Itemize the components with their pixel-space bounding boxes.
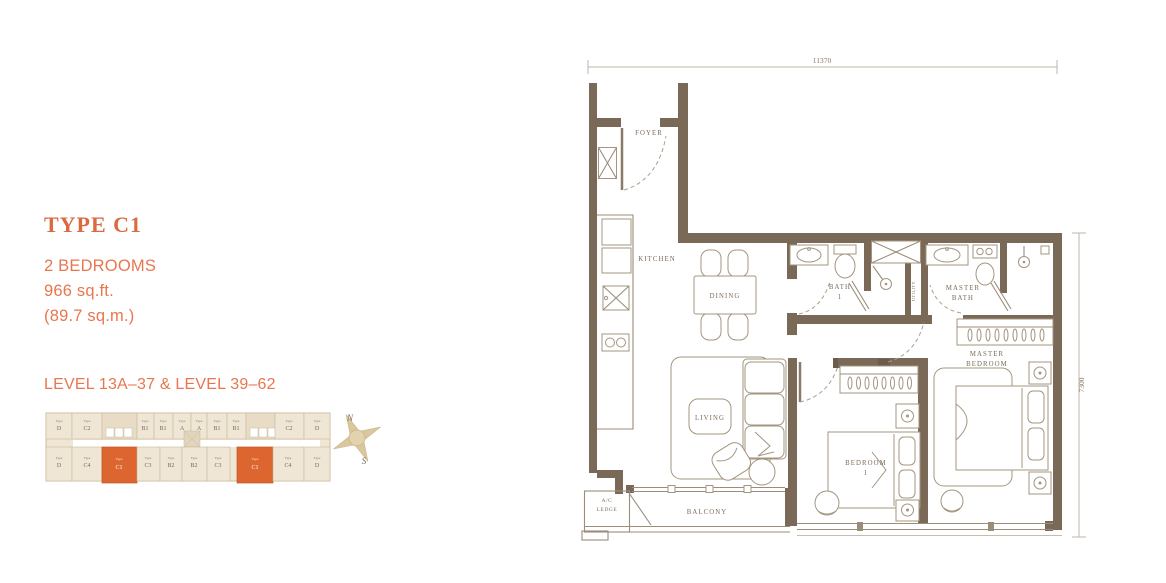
- ac-ledge-label-line2: LEDGE: [597, 507, 618, 513]
- dining-chair: [728, 250, 748, 277]
- master-bath-label-line1: MASTER: [946, 285, 980, 292]
- bedroom1-chair: [815, 491, 839, 515]
- master-bedroom-label-line1: MASTER: [970, 351, 1004, 358]
- entrance-door-swing: [624, 136, 666, 190]
- bedroom1-bed: [828, 432, 920, 508]
- svg-text:Type: Type: [142, 419, 149, 423]
- dimension-width-value: 11370: [813, 56, 832, 65]
- compass-north-label: N: [346, 413, 354, 423]
- room-living: LIVING: [671, 357, 786, 485]
- svg-text:C4: C4: [83, 463, 90, 469]
- dining-chair: [728, 313, 748, 340]
- master-bedroom-label-line2: BEDROOM: [966, 361, 1008, 368]
- room-dining: DINING: [694, 250, 756, 340]
- svg-text:C3: C3: [144, 463, 151, 469]
- keyplan-unit: Type C2: [72, 413, 102, 439]
- kitchen-cabinet: [602, 248, 631, 273]
- master-wardrobe: [957, 319, 1053, 345]
- svg-text:C1: C1: [115, 465, 122, 471]
- keyplan-unit: Type B1: [137, 413, 154, 439]
- keyplan-unit: Type C4: [273, 447, 304, 481]
- svg-text:B1: B1: [159, 426, 166, 432]
- keyplan-core: [102, 413, 137, 439]
- master-bath-label-line2: BATH: [952, 295, 974, 302]
- svg-text:C2: C2: [285, 426, 292, 432]
- keyplan-unit: Type C2: [275, 413, 304, 439]
- ac-ledge: A/C LEDGE: [582, 491, 630, 540]
- dining-chair: [701, 313, 721, 340]
- svg-text:Type: Type: [160, 419, 167, 423]
- svg-text:D: D: [57, 463, 62, 469]
- kitchen-fridge: [602, 219, 631, 245]
- utility-label: UTILITY: [911, 281, 916, 301]
- bedroom1-label-line2: 1: [864, 470, 869, 477]
- master-bath-sink: [926, 245, 968, 265]
- room-foyer: FOYER: [599, 128, 667, 190]
- floorplan: 11370 7300: [582, 56, 1086, 540]
- keyplan-unit: Type D: [304, 413, 330, 439]
- svg-text:Type: Type: [215, 456, 222, 460]
- keyplan-unit: Type C3: [207, 447, 230, 481]
- svg-text:Type: Type: [191, 456, 198, 460]
- svg-text:Type: Type: [84, 419, 91, 423]
- keyplan-unit: Type B1: [207, 413, 227, 439]
- master-chair: [941, 490, 963, 512]
- bedroom1-label-line1: BEDROOM: [845, 460, 887, 467]
- svg-text:D: D: [315, 463, 320, 469]
- room-bedroom1: BEDROOM 1: [800, 362, 920, 521]
- svg-text:Type: Type: [56, 419, 63, 423]
- bath1-sink: [790, 245, 828, 265]
- kitchen-label: KITCHEN: [638, 256, 676, 263]
- keyplan-unit: Type D: [304, 447, 330, 481]
- keyplan-unit: Type B2: [182, 447, 207, 481]
- bedroom1-wardrobe: [840, 366, 918, 393]
- keyplan-unit: Type C3: [137, 447, 160, 481]
- svg-text:B1: B1: [213, 426, 220, 432]
- svg-text:Type: Type: [84, 456, 91, 460]
- bedroom1-nightstand-bottom: [896, 500, 919, 521]
- bath1-toilet: [834, 245, 856, 278]
- keyplan-unit: Type B1: [154, 413, 173, 439]
- ac-duct: [872, 241, 921, 263]
- svg-text:Type: Type: [116, 457, 123, 461]
- master-bath-toilet: [973, 245, 997, 285]
- svg-text:C3: C3: [214, 463, 221, 469]
- svg-text:Type: Type: [214, 419, 221, 423]
- svg-text:Type: Type: [56, 456, 63, 460]
- keyplan-unit: Type B1: [227, 413, 246, 439]
- master-nightstand-bottom: [1029, 472, 1051, 494]
- kitchen-sink: [603, 286, 629, 310]
- svg-text:Type: Type: [196, 419, 203, 423]
- svg-text:Type: Type: [286, 419, 293, 423]
- svg-text:C1: C1: [251, 465, 258, 471]
- dining-chair: [701, 250, 721, 277]
- master-bed: [956, 386, 1048, 470]
- svg-text:Type: Type: [168, 456, 175, 460]
- master-bedroom-door-swing: [888, 322, 924, 362]
- keyplan-unit-highlighted: Type C1: [102, 447, 137, 483]
- master-bath-shower: [991, 246, 1049, 311]
- svg-text:B1: B1: [232, 426, 239, 432]
- kitchen-counter: [597, 215, 633, 429]
- foyer-label: FOYER: [635, 130, 663, 137]
- svg-text:B2: B2: [190, 463, 197, 469]
- keyplan-bottom-row: Type D Type C4 Type C1 Type C3: [46, 447, 330, 483]
- bath1-label-line1: BATH: [829, 284, 851, 291]
- keyplan-unit: Type D: [46, 447, 72, 481]
- keyplan-stair-core: [184, 431, 200, 447]
- bath1-door-swing: [799, 281, 830, 314]
- bedroom-windows: [797, 522, 1062, 536]
- kitchen-hob: [602, 334, 629, 351]
- dining-label: DINING: [710, 293, 741, 300]
- keyplan: Type D Type C2 Type B1: [46, 413, 330, 483]
- keyplan-unit: Type B2: [160, 447, 182, 481]
- svg-text:Type: Type: [252, 457, 259, 461]
- svg-text:Type: Type: [285, 456, 292, 460]
- svg-text:D: D: [57, 426, 62, 432]
- dimension-height-value: 7300: [1077, 377, 1086, 392]
- living-sofa: [743, 359, 786, 459]
- ac-ledge-label-line1: A/C: [602, 498, 613, 504]
- svg-text:B1: B1: [141, 426, 148, 432]
- keyplan-unit: Type C4: [72, 447, 102, 481]
- svg-text:Type: Type: [314, 456, 321, 460]
- svg-text:Type: Type: [145, 456, 152, 460]
- svg-text:Type: Type: [314, 419, 321, 423]
- svg-text:Type: Type: [179, 419, 186, 423]
- svg-text:B2: B2: [167, 463, 174, 469]
- living-side-table: [749, 459, 775, 485]
- drawing-layer: Type D Type C2 Type B1: [0, 0, 1166, 583]
- svg-text:C4: C4: [284, 463, 291, 469]
- compass: N S: [322, 403, 391, 472]
- bedroom1-nightstand-top: [896, 404, 919, 428]
- svg-text:C2: C2: [83, 426, 90, 432]
- compass-south-label: S: [362, 456, 367, 466]
- bedroom1-door-swing: [800, 366, 838, 402]
- svg-text:D: D: [315, 426, 320, 432]
- balcony-ledge-door: [629, 493, 651, 525]
- bath1-label-line2: 1: [838, 294, 843, 301]
- svg-text:Type: Type: [233, 419, 240, 423]
- keyplan-unit: Type D: [46, 413, 72, 439]
- room-master-bath: MASTER BATH: [926, 245, 1049, 313]
- dimension-right: 7300: [1072, 233, 1086, 537]
- master-nightstand-top: [1029, 362, 1051, 384]
- compass-center: [349, 430, 365, 446]
- living-label: LIVING: [695, 415, 725, 422]
- room-kitchen: KITCHEN: [597, 215, 676, 429]
- keyplan-unit-highlighted: Type C1: [237, 447, 273, 483]
- floorplan-page: TYPE C1 2 BEDROOMS 966 sq.ft. (89.7 sq.m…: [0, 0, 1166, 583]
- balcony-label: BALCONY: [687, 509, 728, 516]
- dimension-top: 11370: [588, 56, 1057, 74]
- keyplan-core: [246, 413, 276, 439]
